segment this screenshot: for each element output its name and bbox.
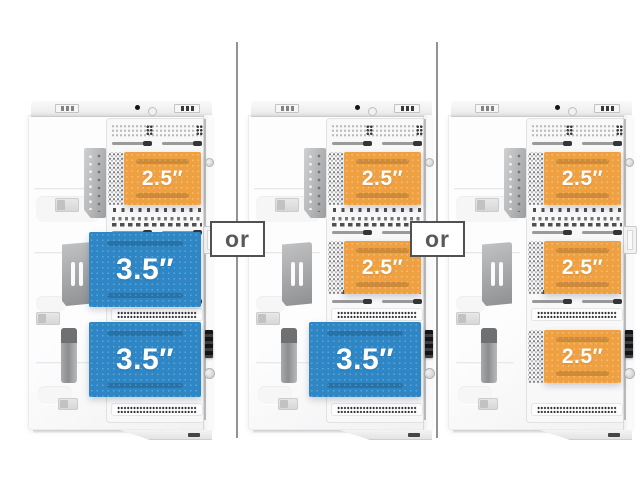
drive-bay-2-5-label: 2.5″ — [544, 330, 621, 383]
mounting-bracket — [304, 148, 326, 218]
case-base — [31, 430, 212, 440]
vent-grill-icon — [531, 403, 623, 416]
screw-icon — [148, 107, 157, 116]
tray-ticks — [333, 208, 421, 212]
molded-panel — [256, 296, 286, 312]
sled-handle — [61, 328, 77, 383]
screw-icon — [204, 368, 215, 379]
screw-icon — [624, 368, 635, 379]
screw-icon — [368, 107, 377, 116]
tray-perforation — [331, 124, 423, 137]
tray-ticks — [533, 208, 621, 212]
vent-grill-icon — [111, 403, 203, 416]
screw-icon — [625, 158, 634, 167]
case-illustration-2: 2.5″ 2.5″ 3.5″ — [248, 100, 432, 440]
molded-panel — [36, 296, 66, 312]
rail-vent-right-icon — [594, 104, 620, 113]
cable-tab — [256, 312, 280, 325]
slotted-bracket — [62, 242, 92, 306]
cable-tab — [58, 398, 78, 410]
slotted-bracket — [482, 242, 512, 306]
or-badge: or — [210, 221, 265, 257]
molded-panel — [456, 296, 486, 312]
vent-grill-icon — [331, 403, 423, 416]
cable-tab — [456, 312, 480, 325]
tray-rail — [332, 299, 422, 304]
tray-blocks — [332, 217, 422, 227]
sled-handle — [481, 328, 497, 383]
or-badge: or — [410, 221, 465, 257]
tray-perforation — [111, 124, 203, 137]
tray-perforation — [531, 124, 623, 137]
case-base — [451, 430, 632, 440]
tray-rail — [112, 141, 202, 146]
case-illustration-1: 2.5″ 3.5″ 3.5″ — [28, 100, 212, 440]
tray-rail — [532, 141, 622, 146]
ssd-tray-perforation — [528, 330, 543, 383]
hinge-peg — [205, 330, 213, 358]
cable-tab — [275, 198, 299, 212]
tray-blocks — [532, 217, 622, 227]
ssd-tray-perforation — [108, 152, 123, 205]
rail-vent-right-icon — [174, 104, 200, 113]
mounting-bracket — [504, 148, 526, 218]
top-rail — [451, 100, 632, 116]
tray-rail — [532, 299, 622, 304]
hinge-peg — [625, 330, 633, 358]
cable-tab — [55, 198, 79, 212]
rail-vent-left-icon — [475, 104, 499, 113]
tray-ticks — [113, 208, 201, 212]
cable-tab — [278, 398, 298, 410]
top-rail — [251, 100, 432, 116]
drive-bay-2-5-label: 2.5″ — [544, 152, 621, 205]
screw-icon — [135, 105, 140, 110]
slotted-bracket — [282, 242, 312, 306]
drive-bay-2-5-label: 2.5″ — [124, 152, 201, 205]
drive-configuration-diagram: 2.5″ 3.5″ 3.5″ — [0, 0, 640, 480]
sled-handle — [281, 328, 297, 383]
tray-blocks — [112, 217, 202, 227]
case-foot — [340, 430, 432, 440]
case-foot — [120, 430, 212, 440]
ssd-tray-perforation — [328, 152, 343, 205]
hinge-peg — [425, 330, 433, 358]
case-base — [251, 430, 432, 440]
screw-icon — [555, 105, 560, 110]
case-foot — [540, 430, 632, 440]
mounting-bracket — [84, 148, 106, 218]
vent-grill-icon — [111, 308, 203, 321]
screw-icon — [355, 105, 360, 110]
drive-bay-2-5-label: 2.5″ — [344, 152, 421, 205]
drive-bay-3-5-label: 3.5″ — [89, 322, 201, 397]
rail-vent-left-icon — [275, 104, 299, 113]
ssd-tray-perforation — [528, 241, 543, 294]
drive-bay-3-5-label: 3.5″ — [89, 232, 201, 307]
rail-vent-right-icon — [394, 104, 420, 113]
tray-rail — [332, 141, 422, 146]
tray-rail — [332, 230, 422, 235]
drive-bay-3-5-label: 3.5″ — [309, 322, 421, 397]
cable-tab — [475, 198, 499, 212]
rail-vent-left-icon — [55, 104, 79, 113]
screw-icon — [205, 158, 214, 167]
case-illustration-3: 2.5″ 2.5″ 2.5″ — [448, 100, 632, 440]
latch — [623, 226, 637, 254]
cable-tab — [478, 398, 498, 410]
screw-icon — [425, 158, 434, 167]
drive-bay-2-5-label: 2.5″ — [544, 241, 621, 294]
vent-grill-icon — [331, 308, 423, 321]
vent-grill-icon — [531, 308, 623, 321]
ssd-tray-perforation — [528, 152, 543, 205]
ssd-tray-perforation — [328, 241, 343, 294]
top-rail — [31, 100, 212, 116]
screw-icon — [568, 107, 577, 116]
screw-icon — [424, 368, 435, 379]
cable-tab — [36, 312, 60, 325]
tray-rail — [532, 230, 622, 235]
